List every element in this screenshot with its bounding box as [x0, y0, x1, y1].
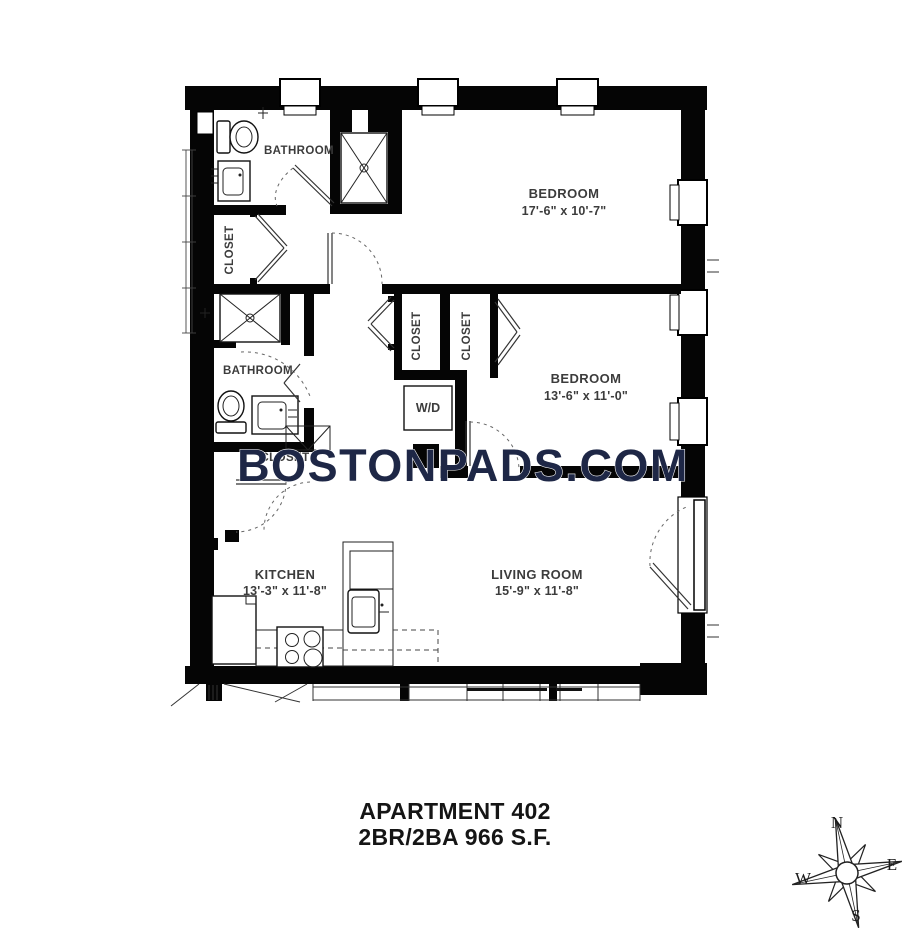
- bathroom2-label: BATHROOM: [223, 365, 293, 377]
- washer-dryer-label: W/D: [416, 401, 440, 415]
- bathroom1-label: BATHROOM: [264, 145, 334, 157]
- closet1-label: CLOSET: [224, 225, 236, 274]
- floor-plan-page: BATHROOM CLOSET BEDROOM 17'-6" x 10'-7" …: [0, 0, 924, 928]
- shower2-icon: [220, 294, 280, 342]
- bedroom1-label: BEDROOM: [529, 186, 600, 201]
- toilet2-icon: [216, 391, 246, 433]
- apartment-title: APARTMENT 402: [359, 798, 550, 824]
- compass-south-label: S: [851, 906, 860, 925]
- vanity2-sink-icon: [252, 396, 298, 434]
- fridge-icon: [212, 596, 256, 664]
- stove-icon: [277, 627, 323, 667]
- compass-west-label: W: [795, 869, 812, 888]
- bedroom1-dims: 17'-6" x 10'-7": [522, 204, 607, 218]
- bostonpads-watermark: BOSTONPADS.COM: [237, 440, 689, 491]
- compass-north-label: N: [831, 813, 843, 832]
- bedroom2-dims: 13'-6" x 11'-0": [544, 389, 628, 403]
- toilet-icon: [217, 121, 258, 153]
- apartment-subtitle: 2BR/2BA 966 S.F.: [358, 824, 551, 850]
- compass-east-label: E: [887, 855, 897, 874]
- bedroom2-label: BEDROOM: [551, 371, 622, 386]
- closet4-label: CLOSET: [461, 311, 473, 360]
- closet3-label: CLOSET: [411, 311, 423, 360]
- kitchen-label: KITCHEN: [255, 567, 316, 582]
- living-room-label: LIVING ROOM: [491, 567, 583, 582]
- floor-plan: BATHROOM CLOSET BEDROOM 17'-6" x 10'-7" …: [0, 0, 924, 928]
- kitchen-dims: 13'-3" x 11'-8": [243, 584, 327, 598]
- living-room-dims: 15'-9" x 11'-8": [495, 584, 579, 598]
- shower-icon: [341, 133, 387, 203]
